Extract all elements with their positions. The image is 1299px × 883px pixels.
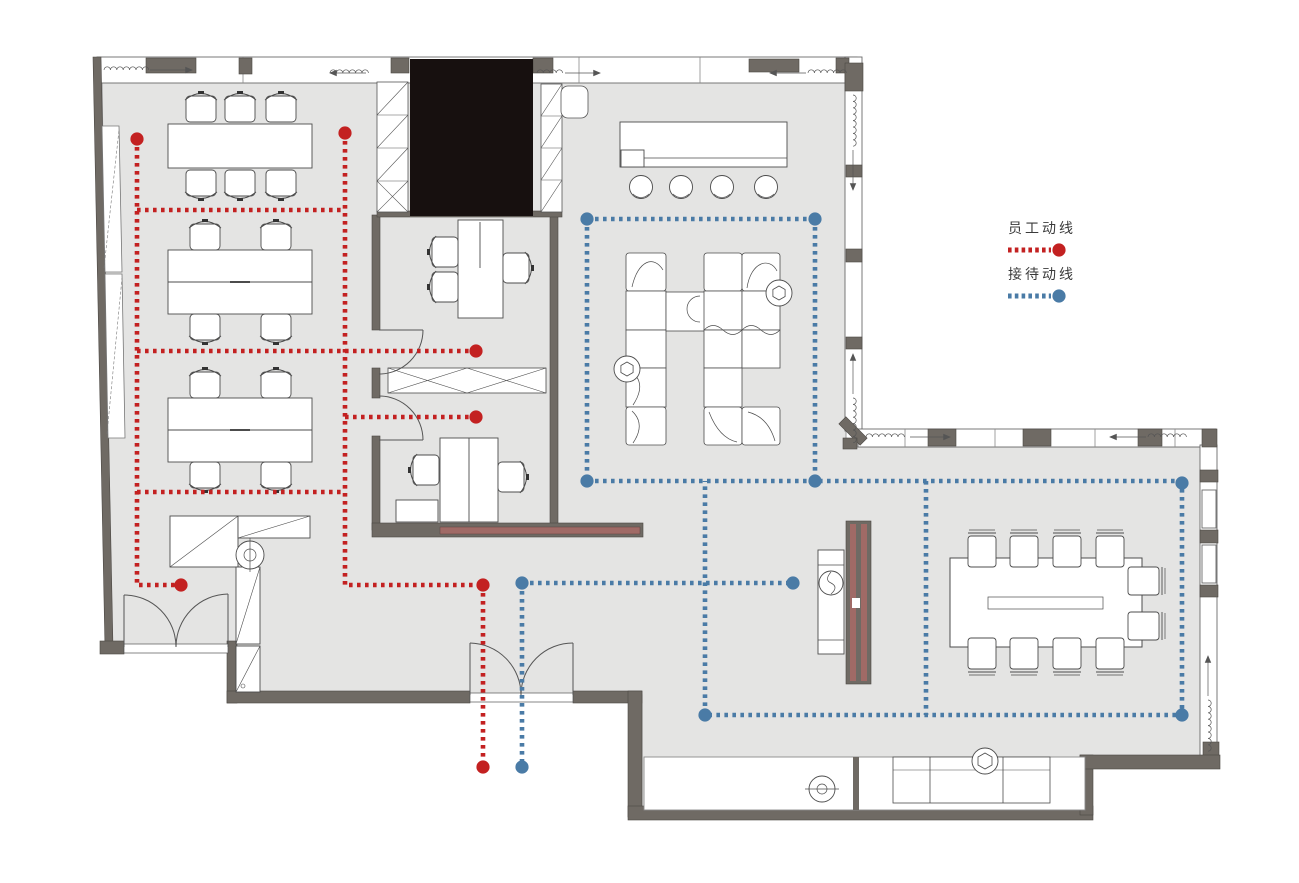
office-chair [265,170,297,201]
office-chair [224,91,256,122]
legend-reception-dot [1052,289,1065,302]
office-chair [189,219,221,250]
office-chair [260,314,292,345]
hex-side-table [766,280,792,306]
legend: 员工动线 接待动线 [1008,221,1076,303]
office-table-a [168,124,312,168]
conference-chair [1128,612,1165,640]
hex-side-table [972,748,998,774]
display-console [818,550,844,654]
office-chair [260,219,292,250]
storefront-band [644,748,1085,810]
bar-stool [711,176,734,199]
wall-finish-strip [440,527,640,534]
bar-stool [670,176,693,199]
office-chair [260,367,292,398]
office-table-b [168,250,312,314]
pantry-fridge [561,86,588,118]
bar-sink [621,150,644,167]
office-chair [265,91,297,122]
floor-plan-page: 员工动线 接待动线 [0,0,1299,883]
legend-staff-dot [1052,243,1065,256]
hex-side-table [614,356,640,382]
conference-cable-tray [988,597,1103,609]
meeting-room-1 [458,220,503,318]
office-chair [503,252,534,284]
office-chair [224,170,256,201]
office-chair [189,314,221,345]
office-chair [185,170,217,201]
office-chair [189,367,221,398]
east-upper-window-band [845,57,862,431]
office-chair [185,91,217,122]
conference-room [950,558,1142,647]
display-wall [846,521,871,684]
wing-east-window-frame [1202,490,1216,528]
bar-stool [630,176,653,199]
office-table-c [168,398,312,462]
window-bench [893,757,1050,803]
between-rooms-cabinet [388,368,546,393]
office-chair [189,462,221,493]
core-shaft [410,59,533,216]
office-chair [427,236,458,268]
office-chair [408,454,439,486]
office-chair [427,271,458,303]
legend-reception-label: 接待动线 [1008,266,1076,283]
conference-chair [1128,567,1165,595]
floor-plan-canvas: 员工动线 接待动线 [0,0,1299,883]
wing-east-window-frame [1202,545,1216,583]
office-chair [260,462,292,493]
office-chair [498,461,529,493]
legend-staff-label: 员工动线 [1008,221,1076,237]
pantry-bar [620,122,787,167]
bar-counter [620,122,787,167]
bar-stool [755,176,778,199]
